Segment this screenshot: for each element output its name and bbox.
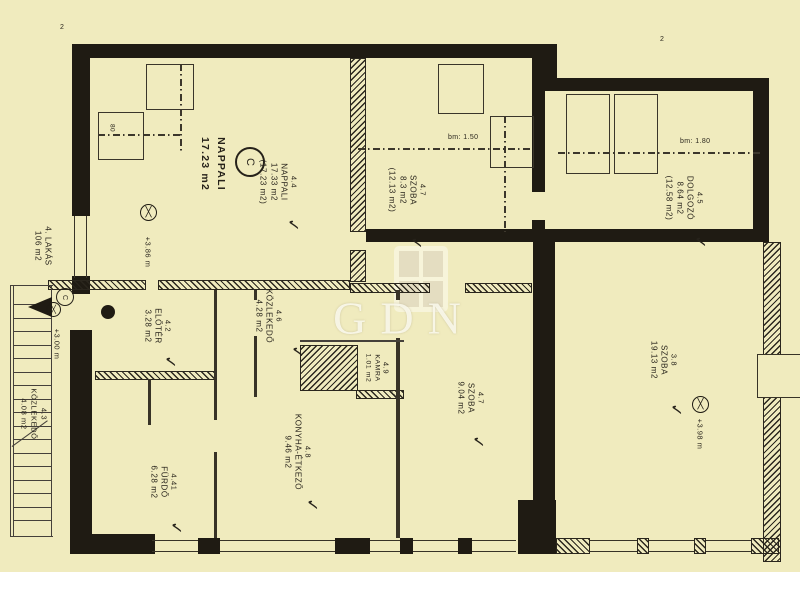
hatched-wall-segment [95, 371, 215, 380]
wall-niche [757, 354, 800, 398]
wall-segment [518, 500, 556, 554]
room-label-szoba-right: 3.8 SZOBA 19.13 m2 [648, 341, 679, 379]
room-id: 4.7 [418, 168, 428, 213]
stair-tread [13, 358, 51, 359]
stair-tread [13, 331, 51, 332]
room-name: KÖZLEKEDŐ [29, 388, 39, 439]
watermark-logo-pane [423, 251, 443, 277]
wall-segment [532, 229, 769, 242]
room-label-kozlekedo: 4.6 KÖZLEKEDŐ 4.28 m2 [253, 289, 284, 343]
apartment-label-line: 4. LAKÁS [42, 226, 52, 266]
partition-stub [148, 379, 151, 425]
hatched-wall-pier [556, 538, 590, 554]
floor-plan-canvas: GDN [0, 0, 800, 600]
scan-margin [0, 572, 800, 600]
room-area: 9.04 m2 [455, 381, 465, 414]
wall-pier [458, 538, 472, 554]
cross-glyph: ╳ [697, 400, 703, 410]
level-value: +3.00 m [53, 329, 62, 360]
partition-wall [214, 372, 217, 420]
section-circle-letter: C [244, 158, 256, 166]
room-area: 3.28 m2 [142, 308, 152, 344]
wall-segment [70, 534, 155, 554]
section-mark: 2 [660, 36, 664, 43]
ceiling-height-label: bm: 1.50 [448, 134, 478, 141]
room-area-note: (17.23 m2) [258, 160, 268, 205]
check-leader: ✓ [287, 345, 307, 358]
room-name: ELŐTÉR [152, 308, 162, 344]
partition-wall [214, 452, 217, 538]
room-label-kozlekedo-stairs: 4.3 KÖZLEKEDŐ 4.08 m2 [19, 388, 48, 439]
hatched-wall-pier [694, 538, 706, 554]
window-opening [413, 540, 458, 552]
ceiling-height-label: bm: 1.80 [680, 138, 710, 145]
hatched-wall-segment [763, 242, 781, 562]
wall-segment [533, 242, 555, 504]
hatched-wall-pier [751, 538, 779, 554]
check-leader: ✓ [666, 403, 686, 416]
window-opening [590, 540, 637, 552]
room-label-nappali: 4.4 NAPPALI 17.33 m2 (17.23 m2) [258, 160, 299, 205]
check-leader: ✓ [468, 435, 488, 448]
room-label-szoba-mid: 4.7 SZOBA 9.04 m2 [455, 381, 486, 414]
level-value: +3.86 m [144, 237, 153, 268]
window-opening [706, 540, 751, 552]
apartment-label: 4. LAKÁS 106 m2 [32, 226, 53, 266]
partition-wall [214, 290, 217, 372]
room-area: 9.46 m2 [282, 414, 292, 490]
room-area: 17.23 m2 [196, 137, 212, 191]
partition-wall [396, 290, 400, 300]
hatched-wall-pier [637, 538, 649, 554]
stair-tread [13, 466, 51, 467]
wall-pier [198, 538, 220, 554]
watermark-logo-pane [399, 251, 419, 277]
wall-segment [545, 78, 769, 91]
apartment-label-line: 106 m2 [32, 226, 42, 266]
level-benchmark-icon: ╳ [46, 302, 61, 317]
stair-tread [13, 480, 51, 481]
furniture-wardrobe [614, 94, 658, 174]
stair-tread [13, 385, 51, 386]
partition-wall [396, 338, 400, 538]
stair-tread [13, 493, 51, 494]
furniture-bed [146, 64, 194, 110]
wall-segment [70, 330, 92, 540]
room-id: 4.8 [303, 414, 313, 490]
furniture-bed [490, 116, 534, 168]
room-label-konyha: 4.8 KONYHA-ÉTKEZŐ 9.46 m2 [282, 414, 313, 490]
level-benchmark-icon: ╳ [692, 396, 709, 413]
stair-tread [13, 520, 51, 521]
room-id: 4.4 [289, 160, 299, 205]
room-id: 4.41 [169, 465, 179, 498]
room-id: 4.9 [381, 354, 391, 383]
room-area-note: (12.13 m2) [387, 168, 397, 213]
hatched-wall-segment [350, 250, 366, 282]
room-label-furdo: 4.41 FÜRDŐ 6.28 m2 [148, 465, 179, 498]
pantry-top-line [300, 340, 404, 342]
room-label-nappali-large: NAPPALI 17.23 m2 [196, 137, 228, 191]
room-label-dolgozo: 4.5 DOLGOZÓ 8.64 m2 (12.58 m2) [664, 176, 705, 221]
room-id: 4.7 [476, 381, 486, 414]
room-name: KÖZLEKEDŐ [263, 289, 273, 343]
room-name: NAPPALI [212, 137, 228, 191]
room-name: FÜRDŐ [158, 465, 168, 498]
room-area-note: (12.58 m2) [664, 176, 674, 221]
room-id: 4.2 [163, 308, 173, 344]
wall-pier [335, 538, 370, 554]
room-id: 3.8 [669, 341, 679, 379]
room-area: 17.33 m2 [268, 160, 278, 205]
wall-segment [72, 44, 90, 216]
level-value: +3.98 m [696, 419, 705, 450]
room-label-szoba-top: 4.7 SZOBA 8.3 m2 (12.13 m2) [387, 168, 428, 213]
stair-tread [13, 345, 51, 346]
room-area: 19.13 m2 [648, 341, 658, 379]
room-area: 1.01 m2 [363, 354, 372, 383]
check-leader: ✓ [406, 236, 426, 249]
wall-segment [75, 44, 557, 58]
cross-glyph: ╳ [145, 208, 151, 218]
stair-tread [13, 453, 51, 454]
room-name: SZOBA [407, 168, 417, 213]
section-circle-letter: C [62, 294, 69, 299]
room-area: 8.64 m2 [674, 176, 684, 221]
room-area: 8.3 m2 [397, 168, 407, 213]
room-name: SZOBA [658, 341, 668, 379]
hatched-wall-segment [465, 283, 532, 293]
window-opening [472, 540, 516, 552]
check-leader: ✓ [302, 498, 322, 511]
check-leader: ✓ [387, 390, 398, 398]
room-name: DOLGOZÓ [684, 176, 694, 221]
window-opening [152, 540, 198, 552]
check-leader: ✓ [690, 235, 710, 248]
window-opening [370, 540, 400, 552]
room-id: 4.3 [39, 388, 49, 439]
hatched-wall-segment [350, 283, 430, 293]
room-area: 4.28 m2 [253, 289, 263, 343]
room-name: NAPPALI [278, 160, 288, 205]
furniture-bed [438, 64, 484, 114]
window-opening [220, 540, 335, 552]
terrace-door-opening [74, 216, 87, 278]
check-leader: ✓ [283, 218, 303, 231]
level-benchmark-icon: ╳ [140, 204, 157, 221]
cross-glyph: ╳ [51, 306, 56, 314]
room-label-kamra: 4.9 KAMRA 1.01 m2 [363, 354, 390, 383]
check-leader: ✓ [166, 521, 186, 534]
room-area: 6.28 m2 [148, 465, 158, 498]
room-id: 4.6 [274, 289, 284, 343]
wall-pier [400, 538, 413, 554]
room-area: 4.08 m2 [19, 388, 29, 439]
hatched-flue-block [300, 345, 358, 391]
bed-size-label: 80 [109, 124, 116, 132]
window-opening [649, 540, 694, 552]
check-leader: ✓ [160, 355, 180, 368]
wall-segment [753, 78, 769, 242]
furniture-wardrobe [566, 94, 610, 174]
wall-segment [366, 229, 532, 242]
room-name: KONYHA-ÉTKEZŐ [292, 414, 302, 490]
room-label-eloter: 4.2 ELŐTÉR 3.28 m2 [142, 308, 173, 344]
stair-tread [13, 372, 51, 373]
hatched-wall-segment [350, 58, 366, 232]
section-mark: 2 [60, 24, 64, 31]
stair-rail [13, 286, 14, 536]
stair-tread [13, 318, 51, 319]
stair-tread [13, 507, 51, 508]
room-name: KAMRA [372, 354, 381, 383]
furniture-bed [98, 112, 144, 160]
partition-wall [254, 336, 257, 397]
room-id: 4.5 [695, 176, 705, 221]
room-name: SZOBA [465, 381, 475, 414]
column-dot [101, 305, 115, 319]
stair-rail [51, 286, 52, 536]
watermark-text: GDN [333, 292, 475, 345]
